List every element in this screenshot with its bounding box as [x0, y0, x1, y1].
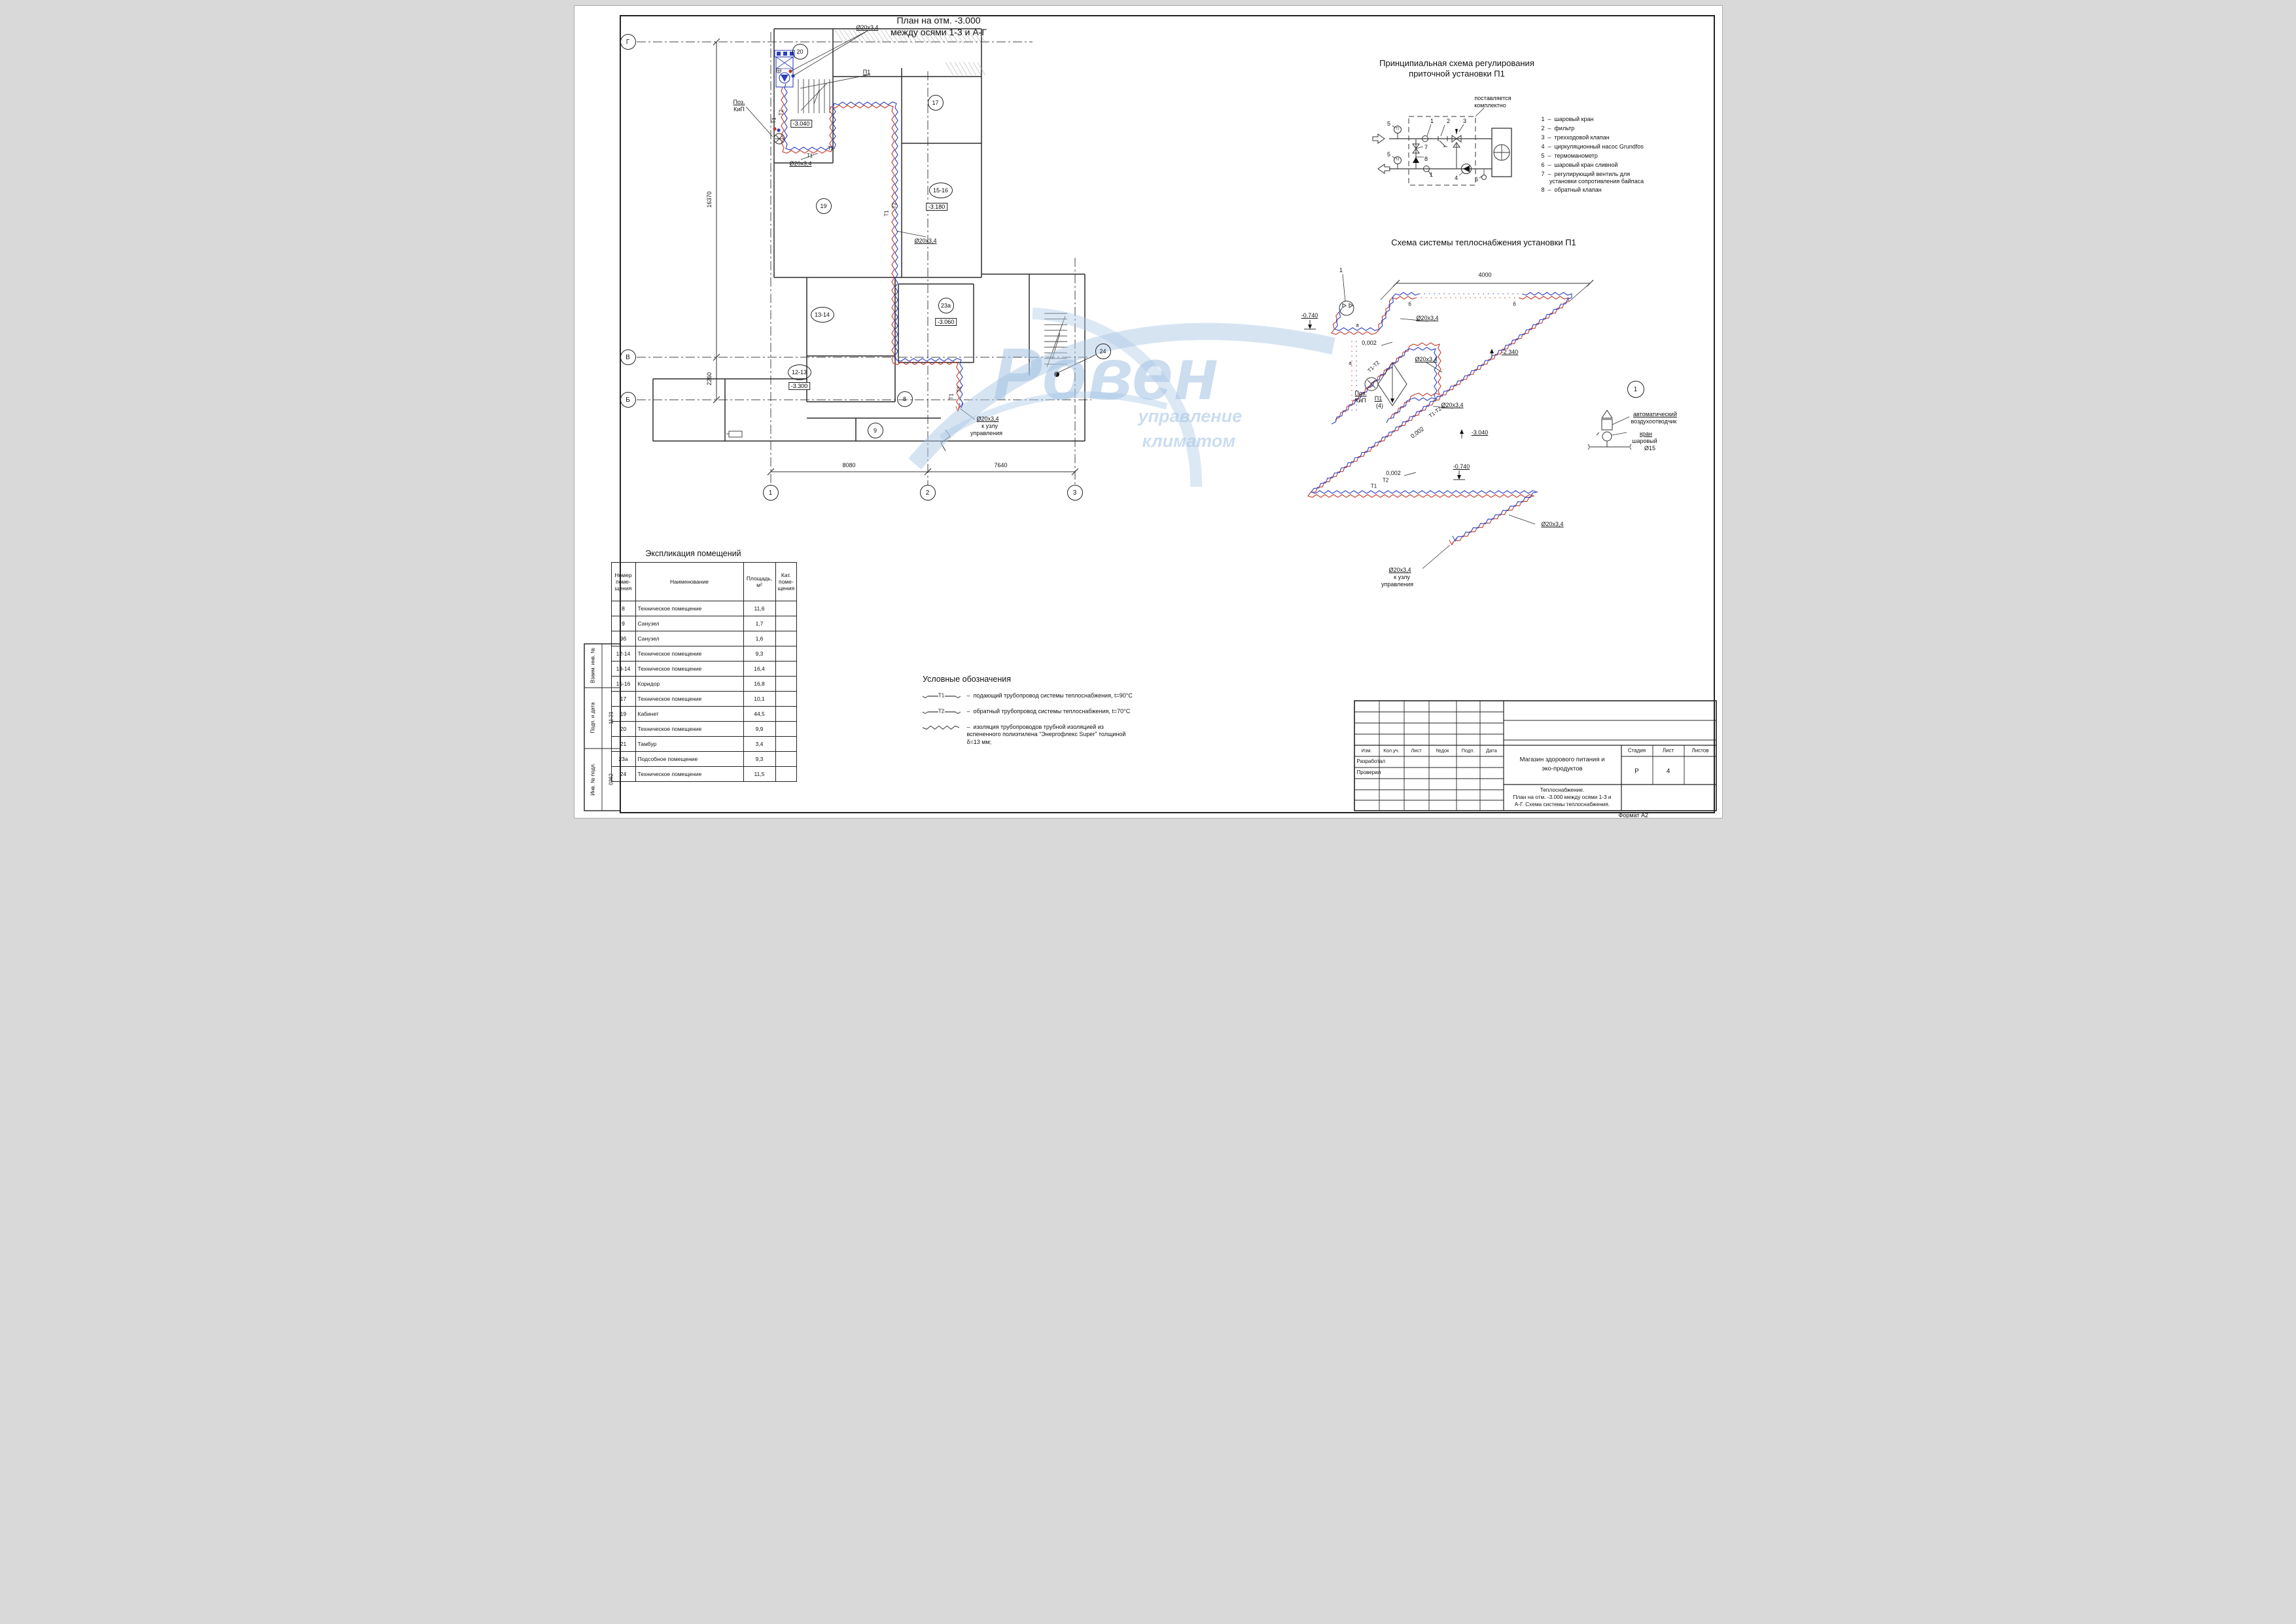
schematic-callout: T2	[1396, 158, 1400, 162]
table-cell	[775, 692, 797, 707]
table-row: 21Тамбур3,4	[611, 737, 797, 752]
drawing-shape	[1475, 108, 1484, 116]
table-cell: Техническое помещение	[635, 722, 743, 737]
axis-bubble-В: В	[620, 349, 636, 365]
table-cell: 11,6	[743, 601, 775, 616]
schematic-callout: T1	[1396, 128, 1400, 132]
axon-label: Ø20x3,4	[1441, 402, 1463, 408]
detail-bubble-1: 1	[1627, 381, 1644, 398]
titleblock-project-line1: Магазин здорового питания и	[1520, 756, 1605, 764]
table-cell: 19	[611, 707, 635, 722]
drawing-shape	[1343, 274, 1345, 302]
drawing-shape	[950, 62, 958, 75]
schematic-callout: 7	[1424, 144, 1428, 150]
air-vent-body	[1602, 419, 1612, 430]
table-cell: 16,8	[743, 677, 775, 692]
schematic-callout: 6	[1475, 176, 1478, 183]
drawing-shape	[1612, 432, 1627, 435]
titleblock-project-line2: эко-продуктов	[1542, 766, 1582, 773]
titleblock-col-header: Кол.уч.	[1383, 748, 1400, 754]
plan-label: T2	[828, 147, 834, 152]
plan-label: управления	[970, 430, 1002, 436]
room-table: Номер поме- щенияНаименованиеПлощадь, м²…	[611, 562, 798, 782]
ahu-cell	[777, 52, 781, 56]
diamond-arrow	[1390, 398, 1394, 403]
table-cell: 13-14	[611, 662, 635, 677]
schematic-callout: 5	[1387, 151, 1390, 158]
table-cell: Санузел	[635, 631, 743, 646]
flow-arrow-in	[1373, 134, 1385, 143]
table-cell	[775, 752, 797, 767]
drawing-shape	[746, 107, 773, 137]
table-cell: 9б	[611, 631, 635, 646]
dimension-label: 16370	[705, 191, 712, 207]
pipe-dot-red	[773, 127, 776, 130]
axon-label: Поз.	[1355, 390, 1367, 397]
room-bubble-8: 8	[897, 391, 913, 407]
schematic-legend-item: 7 – регулирующий вентиль для установки с…	[1542, 171, 1644, 186]
plan-label: П1	[863, 69, 870, 75]
table-cell: 1,6	[743, 631, 775, 646]
table-cell: 8	[611, 601, 635, 616]
drawing-shape	[862, 30, 872, 43]
package-boundary	[1409, 116, 1475, 185]
table-row: 13-14Техническое помещение16,4	[611, 662, 797, 677]
drawing-shape	[1441, 125, 1445, 136]
room-bubble-13-14: 13-14	[811, 307, 834, 323]
table-row: 15-16Коридор16,8	[611, 677, 797, 692]
plan-label: Ø20x3,4	[856, 24, 878, 31]
drawing-shape	[1612, 417, 1629, 425]
side-strip-label: Подп. и дата	[590, 702, 595, 733]
axon-label: Ø20x3,4	[1541, 521, 1563, 527]
titleblock-doc-line1: Теплоснабжение.	[1540, 786, 1585, 793]
table-cell: Техническое помещение	[635, 646, 743, 662]
schematic-legend-item: 5 – термоманометр	[1542, 152, 1598, 160]
drawing-shape	[955, 696, 961, 698]
drawing-shape	[1404, 472, 1416, 476]
drawing-shape	[1422, 545, 1450, 569]
axis-bubble-2: 2	[920, 485, 936, 501]
drawing-shape	[800, 75, 867, 88]
axon-label: 0,002	[1386, 470, 1401, 476]
plan-label: T1	[949, 393, 955, 399]
drawing-shape	[1381, 283, 1396, 300]
axon-label: 1	[1339, 267, 1343, 274]
table-cell: 12-14	[611, 646, 635, 662]
drawing-shape	[923, 696, 928, 698]
drawing-shape	[814, 90, 819, 104]
drawing-shape	[968, 62, 976, 75]
schematic-legend-item: 2 – фильтр	[1542, 125, 1575, 132]
drawing-shape	[881, 30, 890, 43]
plan-label: к узлу	[981, 423, 998, 429]
schematic-legend-item: 4 – циркуляционный насос Grundfos	[1542, 143, 1644, 150]
plan-label: T1	[771, 117, 777, 123]
schematic-legend-item: 6 – шаровый кран сливной	[1542, 162, 1618, 169]
plan-label: T1	[807, 154, 813, 160]
schematic-legend-item: 3 – трехходовой клапан	[1542, 134, 1610, 141]
drawing-shape	[867, 30, 876, 43]
axon-label: 0,002	[1362, 340, 1377, 346]
flow-arrow-out	[1378, 164, 1390, 173]
axon-label: 4000	[1478, 272, 1491, 278]
drawing-shape	[955, 62, 963, 75]
table-cell: 24	[611, 767, 635, 782]
table-cell: 1,7	[743, 616, 775, 631]
axon-label: а	[1356, 323, 1358, 329]
table-row: 17Техническое помещение10,1	[611, 692, 797, 707]
ball-valve-icon	[1602, 432, 1612, 441]
plan-pipe-T1	[781, 87, 959, 410]
drawing-shape	[1439, 141, 1445, 147]
plan-label: Ø20x3,4	[976, 415, 998, 422]
table-cell	[775, 646, 797, 662]
titleblock-col-header: Лист	[1411, 748, 1421, 754]
drawing-shape	[1459, 172, 1463, 175]
table-cell: 23а	[611, 752, 635, 767]
axon-label: шаровый	[1632, 438, 1657, 444]
table-cell: Кабинет	[635, 707, 743, 722]
legend-symbol	[923, 726, 959, 730]
axon-label: Ø20x3,4	[1416, 315, 1438, 321]
axon-label: б	[1513, 302, 1516, 308]
air-vent-triangle	[1602, 410, 1612, 418]
titleblock-doc-line3: А-Г. Схема системы теплоснабжения.	[1515, 801, 1610, 807]
axon-title: Схема системы теплоснабжения установки П…	[1391, 238, 1576, 247]
plan-pipe-T2	[784, 84, 962, 407]
axon-label: а	[1349, 361, 1351, 367]
plan-label: T2	[892, 202, 898, 208]
axon-label: -0.740	[1453, 463, 1470, 470]
axon-label: (4)	[1376, 402, 1383, 409]
table-cell	[775, 707, 797, 722]
axon-branch-T1	[1335, 343, 1441, 419]
table-cell: Техническое помещение	[635, 662, 743, 677]
pipe-dot-blue	[777, 128, 780, 132]
level-arrow-down	[1457, 475, 1461, 480]
dimension-label: 8080	[842, 462, 855, 468]
titleblock-sheets-label: Листов	[1692, 748, 1709, 754]
titleblock-sheet-value: 4	[1667, 768, 1670, 775]
axon-label: П1	[1375, 395, 1382, 402]
side-strip-value: 0362	[608, 773, 614, 785]
schematic-callout: 2	[1447, 118, 1450, 124]
drawing-shape	[1381, 342, 1392, 345]
axon-label: Ø15	[1644, 445, 1655, 451]
titleblock-col-header: Подп.	[1462, 748, 1475, 754]
titleblock-role-checked: Проверил	[1357, 769, 1381, 775]
valve-arrow	[1455, 129, 1458, 135]
table-cell	[775, 616, 797, 631]
drawing-shape	[872, 30, 881, 43]
axis-bubble-3: 3	[1067, 485, 1083, 501]
level-arrow-up	[1490, 349, 1494, 353]
drawing-shape	[1392, 156, 1395, 158]
table-cell: 9,9	[743, 722, 775, 737]
legend-item-text: – обратный трубопровод системы теплоснаб…	[967, 708, 1131, 715]
titleblock-col-header: Дата	[1486, 748, 1497, 754]
table-cell: 21	[611, 737, 635, 752]
room-table-title: Экспликация помещений	[645, 549, 741, 558]
titleblock-stage-label: Стадия	[1628, 748, 1646, 754]
axon-pipe-T1	[1332, 296, 1416, 334]
table-cell: Тамбур	[635, 737, 743, 752]
drawing-shape	[964, 62, 972, 75]
table-row: 12-14Техническое помещение9,3	[611, 646, 797, 662]
axon-pipe-T2	[1335, 292, 1419, 330]
dimension-label: 2260	[705, 372, 712, 385]
table-cell: Санузел	[635, 616, 743, 631]
table-cell: 17	[611, 692, 635, 707]
table-cell: 20	[611, 722, 635, 737]
side-strip-value: 11.21	[608, 711, 614, 724]
room-bubble-24: 24	[1095, 344, 1111, 359]
drawing-shape	[1459, 124, 1464, 132]
drawing-shape	[1509, 515, 1535, 524]
drawing-shape	[835, 30, 844, 43]
fan-triangle-icon	[781, 75, 788, 82]
table-cell: 15-16	[611, 677, 635, 692]
table-cell	[775, 767, 797, 782]
level-mark: -3.180	[926, 203, 948, 211]
table-cell: Техническое помещение	[635, 767, 743, 782]
drawing-shape	[876, 30, 885, 43]
symbols-legend-title: Условные обозначения	[923, 675, 1011, 684]
side-strip-label: Инв. № подл.	[590, 763, 595, 796]
titleblock-role-developed: Разработал	[1357, 758, 1386, 764]
table-cell: 9	[611, 616, 635, 631]
table-row: 20Техническое помещение9,9	[611, 722, 797, 737]
plan-label: T2	[779, 109, 785, 115]
pump-triangle	[1463, 166, 1470, 172]
schematic-title-line2: приточной установки П1	[1409, 69, 1505, 79]
drawing-shape	[923, 712, 928, 714]
room-bubble-15-16: 15-16	[929, 183, 953, 198]
table-cell	[775, 601, 797, 616]
table-cell: 3,4	[743, 737, 775, 752]
table-row: 9Санузел1,7	[611, 616, 797, 631]
axon-label: Ø20x3,4	[1415, 356, 1437, 362]
table-cell: Коридор	[635, 677, 743, 692]
drawing-shape	[1597, 432, 1599, 435]
plan-label: T1	[884, 210, 890, 216]
titleblock-sheet-label: Лист	[1663, 748, 1674, 754]
drawing-shape	[1569, 283, 1590, 302]
titleblock-col-header: Изм.	[1361, 748, 1371, 754]
valve-pair-icon	[1343, 304, 1352, 308]
drawing-shape	[973, 62, 981, 75]
drawing-shape	[955, 712, 961, 714]
legend-item-text: – подающий трубопровод системы теплоснаб…	[967, 692, 1133, 699]
table-cell: 9,3	[743, 646, 775, 662]
schematic-legend-item: 8 – обратный клапан	[1542, 186, 1602, 194]
table-cell: Подсобное помещение	[635, 752, 743, 767]
axon-label: управления	[1381, 581, 1413, 588]
connection-point	[1054, 372, 1059, 377]
plan-label: T2	[957, 386, 963, 392]
level-arrow-down	[1308, 325, 1312, 329]
axon-label: Ø20x3,4	[1388, 567, 1411, 573]
schematic-callout: 1	[1430, 171, 1433, 178]
table-row: 8Техническое помещение11,6	[611, 601, 797, 616]
valve-node-circle	[1339, 301, 1354, 315]
side-strip-label: Взаим. инв. №	[590, 648, 595, 683]
plan-label: Поз.	[733, 99, 745, 105]
plan-label: КиП	[733, 106, 745, 113]
table-header: Площадь, м²	[743, 563, 775, 601]
titleblock-col-header: №док	[1436, 748, 1449, 754]
drawing-shape	[923, 726, 959, 730]
plan-label: Ø20x3,4	[789, 160, 811, 167]
sink-icon	[729, 431, 742, 437]
table-cell	[775, 662, 797, 677]
schematic-title-line1: Принципиальная схема регулирования	[1379, 58, 1534, 68]
schematic-note-line1: поставляется	[1474, 95, 1511, 101]
table-cell: Техническое помещение	[635, 692, 743, 707]
schematic-callout: 4	[1455, 175, 1458, 181]
drawing-shape	[1427, 124, 1431, 136]
schematic-callout: 8	[1424, 156, 1428, 162]
schematic-callout: 3	[1463, 118, 1466, 124]
axon-label: кран	[1640, 431, 1652, 437]
table-header: Наименование	[635, 563, 743, 601]
axon-label: -3.040	[1472, 429, 1489, 436]
titleblock-stage-value: Р	[1634, 768, 1639, 775]
axis-bubble-Б: Б	[620, 392, 636, 408]
table-cell	[775, 677, 797, 692]
room-bubble-23а: 23а	[938, 298, 954, 313]
drawing-sheet: План на отм. -3.000 между осями 1-3 и А-…	[574, 5, 1723, 819]
axon-label: к узлу	[1394, 574, 1410, 580]
legend-item-text: – изоляция трубопроводов трубной изоляци…	[967, 724, 1126, 746]
table-row: 9бСанузел1,6	[611, 631, 797, 646]
schematic-note-line2: комплектно	[1474, 102, 1506, 109]
table-cell: 10,1	[743, 692, 775, 707]
table-cell	[775, 737, 797, 752]
table-header: Номер поме- щения	[611, 563, 635, 601]
table-row: 24Техническое помещение11,5	[611, 767, 797, 782]
room-bubble-20: 20	[792, 44, 808, 60]
plan-title-line1: План на отм. -3.000	[896, 15, 980, 26]
schematic-callout: 1	[1430, 118, 1434, 124]
level-mark: -3.300	[788, 382, 811, 390]
legend-symbol-tag: T2	[938, 709, 944, 715]
legend-symbol-tag: T1	[938, 694, 944, 699]
schematic-callout: 5	[1387, 120, 1390, 127]
table-cell: 16,4	[743, 662, 775, 677]
table-cell: 44,5	[743, 707, 775, 722]
drawing-shape	[945, 62, 953, 75]
drawing-shape	[844, 30, 853, 43]
level-mark: -3.060	[935, 318, 957, 326]
axon-label: КиП	[1355, 397, 1366, 404]
axon-label: -2.340	[1502, 349, 1519, 355]
table-cell	[775, 722, 797, 737]
table-cell: Техническое помещение	[635, 601, 743, 616]
axon-label: автоматический	[1633, 411, 1677, 417]
drawing-shape	[1449, 540, 1452, 545]
level-mark: -3.040	[790, 120, 813, 128]
drawing-shape	[1392, 126, 1395, 128]
table-header: Кат. поме- щения	[775, 563, 797, 601]
schematic-legend-item: 1 – шаровый кран	[1542, 116, 1594, 123]
drawing-shape	[896, 231, 926, 237]
room-bubble-12-13: 12-13	[788, 364, 811, 380]
drawing-shape	[1453, 536, 1455, 541]
axis-bubble-1: 1	[763, 485, 779, 501]
table-cell: 9,3	[743, 752, 775, 767]
room-bubble-9: 9	[868, 423, 883, 438]
dimension-label: 7640	[994, 462, 1007, 468]
format-note: Формат А2	[1619, 812, 1648, 819]
axon-label: б	[1408, 302, 1411, 308]
axon-label: T2	[1383, 478, 1388, 484]
drain-valve-icon	[1481, 175, 1486, 180]
plan-title-line2: между осями 1-3 и А-Г	[891, 27, 987, 37]
titleblock-doc-line2: План на отм. -3.000 между осями 1-3 и	[1513, 794, 1611, 800]
room-bubble-17: 17	[928, 95, 944, 111]
table-row: 23аПодсобное помещение9,3	[611, 752, 797, 767]
table-row: 19Кабинет44,5	[611, 707, 797, 722]
axon-label: воздухоотводчик	[1631, 418, 1677, 425]
drawing-shape	[959, 62, 967, 75]
axon-label: -0.740	[1301, 312, 1318, 319]
ahu-cell	[783, 52, 787, 56]
plan-label: Ø20x3,4	[914, 238, 936, 244]
axon-label: T1	[1371, 484, 1377, 490]
axis-bubble-Г: Г	[620, 34, 636, 50]
table-cell	[775, 631, 797, 646]
level-arrow-up	[1460, 429, 1464, 434]
check-valve-icon	[1413, 157, 1419, 163]
room-bubble-19: 19	[816, 198, 832, 214]
table-cell: 11,5	[743, 767, 775, 782]
